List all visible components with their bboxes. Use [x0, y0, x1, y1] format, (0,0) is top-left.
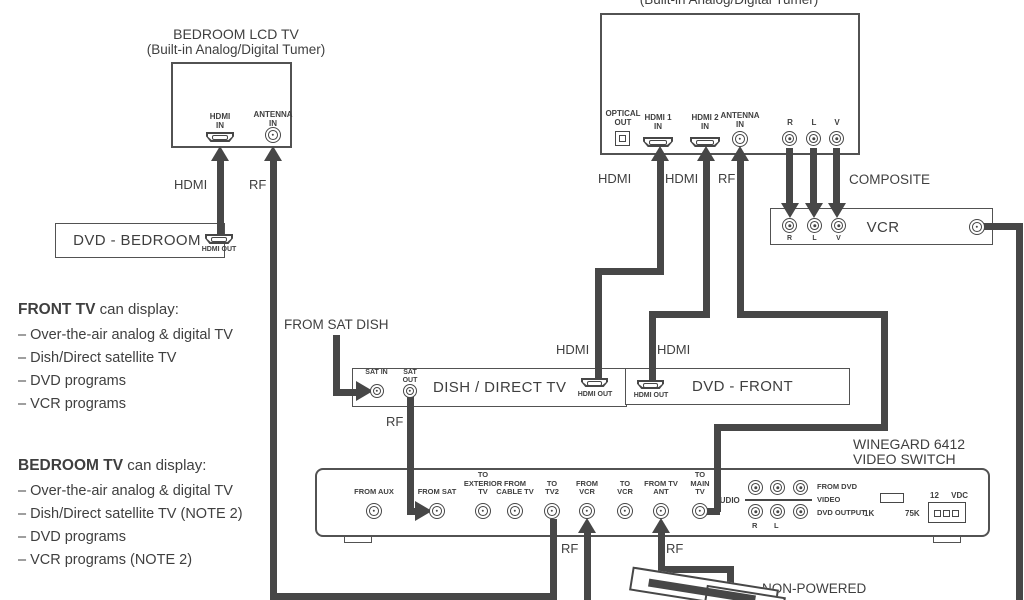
- notes-bedroom-item: – Over-the-air analog & digital TV: [18, 480, 243, 503]
- hdmi1-port-icon: [643, 137, 673, 147]
- bedroom-tv-title: BEDROOM LCD TV: [156, 26, 316, 42]
- hdmi-in-port-icon: [206, 132, 234, 142]
- wire-rf-main-v3: [714, 424, 721, 512]
- sat-out-label: SAT OUT: [397, 369, 423, 385]
- front-jack-v-label: V: [832, 119, 842, 128]
- sat-in-label: SAT IN: [364, 369, 389, 377]
- dvd-bedroom-hdmi-out-icon: [205, 234, 233, 244]
- wire-rf-tv2-v: [550, 519, 557, 600]
- hdmi-front2-wire-label: HDMI: [665, 171, 698, 186]
- wiring-diagram-canvas: BEDROOM LCD TV (Built-in Analog/Digital …: [0, 0, 1024, 600]
- wire-rf-main-v2: [881, 311, 888, 431]
- switch-video-label: VIDEO: [817, 496, 840, 505]
- switch-jack-label-to-main-tv: TO MAIN TV: [685, 474, 715, 497]
- notes-bedroom-heading: BEDROOM TV can display:: [18, 457, 243, 475]
- wire-rf-main-h2: [714, 424, 888, 431]
- vcr-title: VCR: [858, 219, 908, 236]
- bedroom-tv-subtitle: (Built-in Analog/Digital Tumer): [141, 42, 331, 57]
- notes-front-item: – Over-the-air analog & digital TV: [18, 324, 233, 347]
- vcr-jack-v-label: V: [834, 235, 843, 243]
- dvd-front-title: DVD - FRONT: [692, 378, 784, 395]
- vcr-jack-r-label: R: [785, 235, 794, 243]
- vcr-rf-out-coax-icon: [969, 219, 985, 235]
- notes-front-heading: FRONT TV can display:: [18, 301, 233, 319]
- switch-jack-from-tv-ant: [653, 503, 669, 519]
- switch-jack-from-sat: [429, 503, 445, 519]
- wire-hdmi1-v1: [657, 159, 664, 275]
- wire-sat-out-v: [407, 396, 414, 515]
- switch-jack-from-aux: [366, 503, 382, 519]
- vcr-jack-l-label: L: [810, 235, 819, 243]
- wire-hdmi2-h: [649, 311, 710, 318]
- arrow-into-hdmi1: [651, 146, 669, 161]
- hdmi-front1-wire-label: HDMI: [598, 171, 631, 186]
- wire-rf-main-v1: [737, 159, 744, 318]
- switch-rca-dvd-video-in: [793, 480, 808, 495]
- wire-hdmi-bedroom: [217, 159, 224, 236]
- front-antenna-coax-icon: [732, 131, 748, 147]
- notes-front: FRONT TV can display: – Over-the-air ana…: [18, 301, 233, 416]
- wire-hdmi1-h: [595, 268, 664, 275]
- switch-rca-out-video: [793, 504, 808, 519]
- wire-hdmi1-v2: [595, 268, 602, 382]
- dish-title: DISH / DIRECT TV: [433, 379, 558, 396]
- wire-hdmi2-v2: [649, 311, 656, 384]
- switch-jack-to-vcr: [617, 503, 633, 519]
- wire-composite-v: [833, 148, 840, 205]
- arrow-into-bedroom-hdmi: [211, 146, 229, 161]
- hdmi2-in-label: HDMI 2 IN: [689, 114, 721, 132]
- switch-jack-label-from-cable-tv: FROM CABLE TV: [495, 468, 535, 497]
- vcr-rca-r-icon: [782, 218, 797, 233]
- rf-to-tv2-wire-label: RF: [561, 541, 578, 556]
- wire-rf-bedroom-v: [270, 159, 277, 596]
- notes-bedroom-item: – VCR programs (NOTE 2): [18, 549, 243, 572]
- hdmi1-in-label: HDMI 1 IN: [642, 114, 674, 132]
- arrow-into-front-antenna: [731, 146, 749, 161]
- composite-label: COMPOSITE: [849, 172, 930, 187]
- dvd-front-hdmi-out-label: HDMI OUT: [630, 392, 672, 400]
- hdmi-dish-wire-label: HDMI: [556, 342, 589, 357]
- hdmi-dvd-front-wire-label: HDMI: [657, 342, 690, 357]
- sat-out-coax-icon: [403, 384, 417, 398]
- dish-hdmi-out-icon: [581, 378, 608, 387]
- rf-bedroom-wire-label: RF: [249, 177, 266, 192]
- audio-video-divider: [745, 499, 812, 501]
- arrow-into-from-vcr: [578, 518, 596, 533]
- switch-jack-label-from-sat: FROM SAT: [415, 474, 459, 497]
- wire-from-vcr-v: [584, 531, 591, 600]
- sat-in-coax-icon: [370, 384, 384, 398]
- switch-r-label: R: [752, 522, 757, 531]
- from-sat-dish-label: FROM SAT DISH: [284, 317, 389, 332]
- bedroom-antenna-coax-icon: [265, 127, 281, 143]
- switch-jack-to-exterior-tv: [475, 503, 491, 519]
- switch-rca-dvd-audio-r: [748, 480, 763, 495]
- switch-l-label: L: [774, 522, 779, 531]
- front-rca-r-icon: [782, 131, 797, 146]
- front-tv-box: [600, 13, 860, 155]
- dvd-front-hdmi-out-icon: [637, 380, 664, 389]
- wire-sat-dish-v: [333, 335, 340, 396]
- rf-front-wire-label: RF: [718, 171, 735, 186]
- switch-jack-label-to-tv2: TO TV2: [539, 474, 565, 497]
- rf-tv-ant-wire-label: RF: [666, 541, 683, 556]
- switch-power-label: 12 VDC: [930, 491, 968, 500]
- dvd-bedroom-title: DVD - BEDROOM: [72, 232, 202, 249]
- wire-rf-bedroom-h: [270, 593, 557, 600]
- switch-jumper-icon: [880, 493, 904, 503]
- front-rca-l-icon: [806, 131, 821, 146]
- vcr-rca-v-icon: [831, 218, 846, 233]
- switch-from-dvd-label: FROM DVD: [817, 483, 857, 492]
- dvd-bedroom-hdmi-out-label: HDMI OUT: [199, 246, 239, 254]
- notes-front-item: – DVD programs: [18, 370, 233, 393]
- switch-1k-label: 1K: [864, 509, 874, 518]
- switch-rca-dvd-audio-l: [770, 480, 785, 495]
- switch-dvd-output-label: DVD OUTPUT: [817, 509, 866, 518]
- video-switch-title: WINEGARD 6412 VIDEO SWITCH: [853, 437, 965, 467]
- front-tv-subtitle: (Built-in Analog/Digital Tumer): [619, 0, 839, 7]
- arrow-into-from-tv-ant: [652, 518, 670, 533]
- rf-sat-out-wire-label: RF: [386, 414, 403, 429]
- arrow-into-vcr-l: [805, 203, 823, 218]
- arrow-into-vcr-r: [781, 203, 799, 218]
- switch-jack-from-vcr: [579, 503, 595, 519]
- wire-composite-l: [810, 148, 817, 205]
- front-antenna-in-label: ANTENNA IN: [720, 112, 760, 130]
- switch-jack-from-cable-tv: [507, 503, 523, 519]
- tv-antenna-icon: [605, 558, 805, 600]
- optical-out-label: OPTICAL OUT: [605, 110, 641, 128]
- notes-front-item: – VCR programs: [18, 393, 233, 416]
- hdmi-bedroom-wire-label: HDMI: [174, 177, 207, 192]
- switch-75k-label: 75K: [905, 509, 920, 518]
- notes-bedroom: BEDROOM TV can display: – Over-the-air a…: [18, 457, 243, 572]
- switch-jack-to-main-tv: [692, 503, 708, 519]
- notes-bedroom-item: – Dish/Direct satellite TV (NOTE 2): [18, 503, 243, 526]
- wire-hdmi2-v1: [703, 159, 710, 318]
- switch-rca-out-audio-l: [770, 504, 785, 519]
- front-jack-l-label: L: [809, 119, 819, 128]
- switch-jack-to-tv2: [544, 503, 560, 519]
- arrow-into-vcr-v: [828, 203, 846, 218]
- arrow-into-hdmi2: [697, 146, 715, 161]
- wire-rf-main-h1: [737, 311, 888, 318]
- switch-jack-label-from-tv-ant: FROM TV ANT: [643, 474, 679, 497]
- switch-jack-label-from-aux: FROM AUX: [352, 474, 396, 497]
- switch-jack-label-from-vcr: FROM VCR: [571, 474, 603, 497]
- bedroom-hdmi-in-label: HDMI IN: [205, 113, 235, 131]
- wire-vcr-out-v: [1016, 223, 1023, 600]
- switch-power-connector-icon: [928, 502, 966, 523]
- front-rca-v-icon: [829, 131, 844, 146]
- notes-front-item: – Dish/Direct satellite TV: [18, 347, 233, 370]
- optical-port-icon: [615, 131, 630, 146]
- front-jack-r-label: R: [785, 119, 795, 128]
- switch-jack-label-to-vcr: TO VCR: [611, 474, 639, 497]
- wire-composite-r: [786, 148, 793, 205]
- dish-hdmi-out-label: HDMI OUT: [574, 391, 616, 399]
- arrow-into-bedroom-antenna: [264, 146, 282, 161]
- notes-bedroom-item: – DVD programs: [18, 526, 243, 549]
- hdmi2-port-icon: [690, 137, 720, 147]
- switch-rca-out-audio-r: [748, 504, 763, 519]
- vcr-rca-l-icon: [807, 218, 822, 233]
